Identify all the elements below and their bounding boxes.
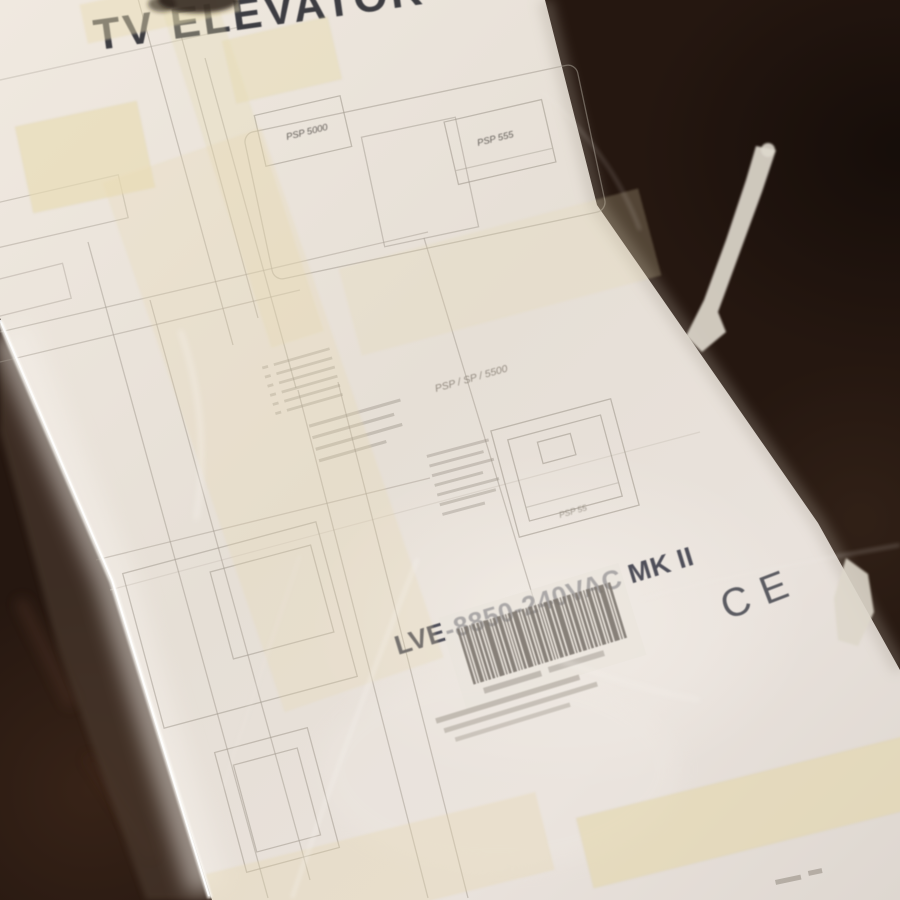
photo-of-tv-lift-box: TV ELEVATOR PSP 5000 PSP 555 PSP / SP / … xyxy=(0,0,900,900)
floor-dark-corner xyxy=(640,0,900,360)
photo-scene: TV ELEVATOR PSP 5000 PSP 555 PSP / SP / … xyxy=(0,0,900,900)
torn-tape-nub xyxy=(761,143,775,157)
